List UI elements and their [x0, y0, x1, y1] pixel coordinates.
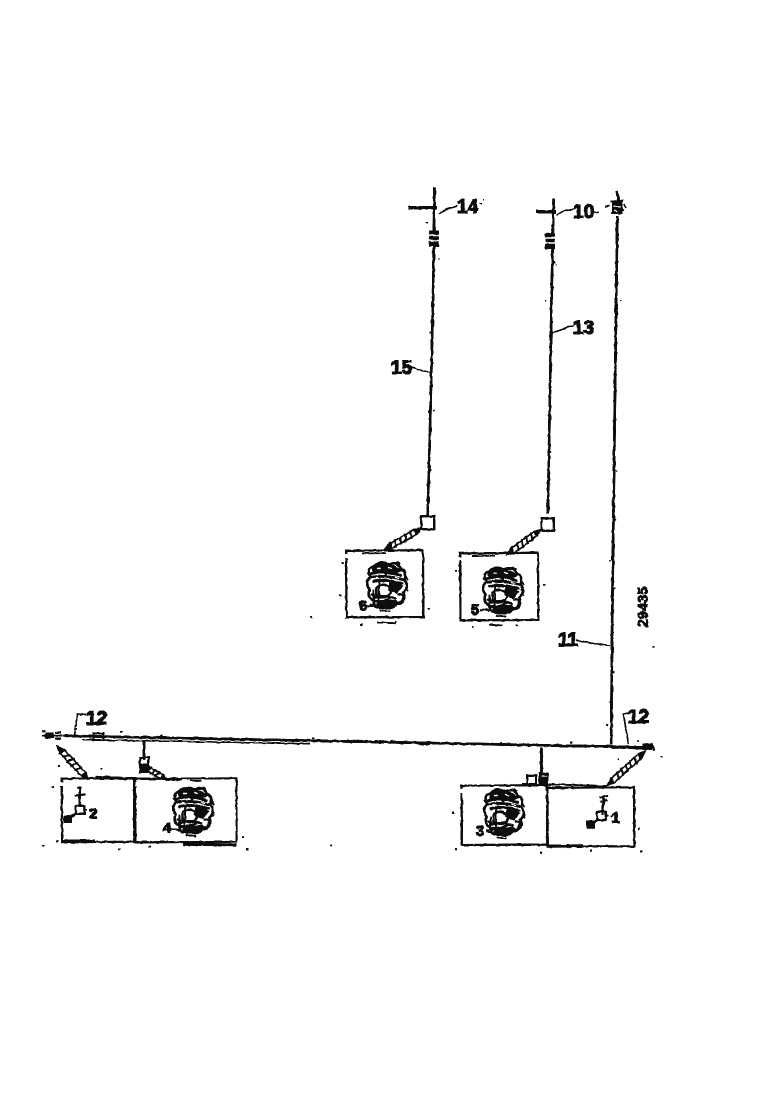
svg-text:14: 14 [457, 197, 479, 218]
svg-text:5: 5 [471, 603, 479, 619]
svg-text:2: 2 [90, 807, 98, 823]
svg-text:13: 13 [573, 318, 594, 339]
svg-text:29435: 29435 [635, 587, 651, 627]
svg-text:10: 10 [573, 202, 594, 223]
svg-text:15: 15 [391, 358, 413, 379]
svg-text:1: 1 [612, 811, 620, 827]
svg-text:12: 12 [86, 709, 107, 730]
svg-text:4: 4 [163, 821, 171, 837]
svg-text:12: 12 [628, 707, 649, 728]
svg-text:6: 6 [359, 599, 367, 615]
svg-text:3: 3 [476, 824, 484, 840]
svg-text:11: 11 [558, 630, 579, 651]
